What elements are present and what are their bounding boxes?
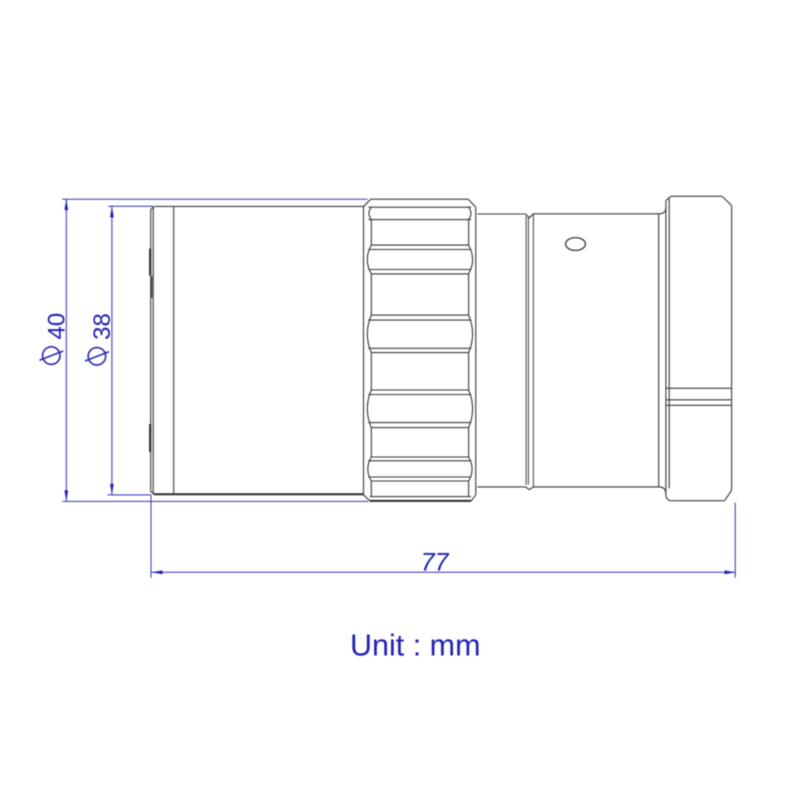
svg-text:38: 38 <box>89 313 116 340</box>
svg-text:Unit : mm: Unit : mm <box>350 629 480 663</box>
svg-text:77: 77 <box>421 549 450 577</box>
svg-text:40: 40 <box>44 313 71 340</box>
